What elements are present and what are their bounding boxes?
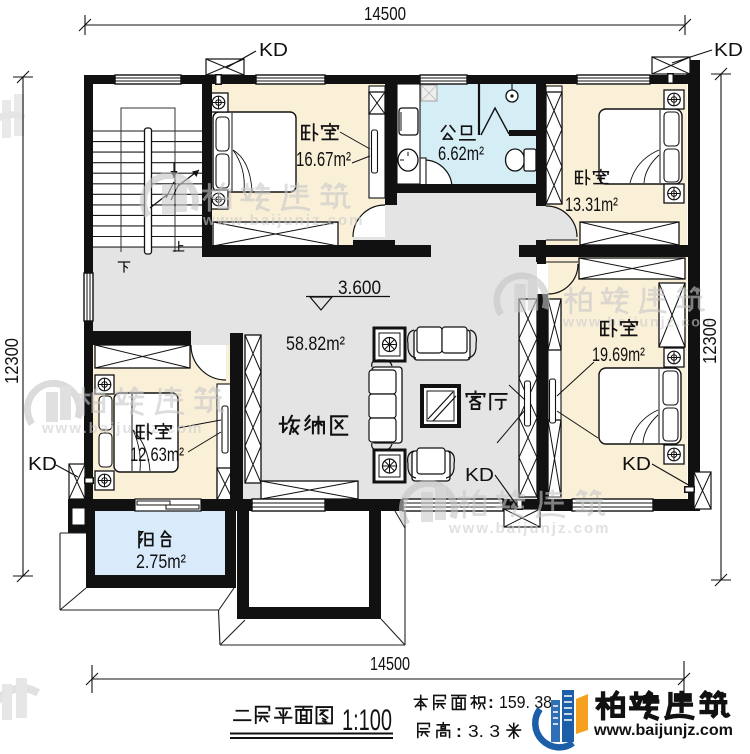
svg-text:KD: KD	[259, 40, 288, 60]
svg-text:KD: KD	[714, 40, 743, 60]
svg-text:12300: 12300	[700, 318, 720, 364]
svg-text:12.63m²: 12.63m²	[130, 445, 184, 466]
svg-text:16.67m²: 16.67m²	[296, 149, 351, 171]
svg-text:www.baijunjz.com: www.baijunjz.com	[448, 520, 610, 537]
svg-text:1:100: 1:100	[342, 704, 392, 737]
svg-text:6.62m²: 6.62m²	[438, 144, 484, 165]
svg-text:13.31m²: 13.31m²	[565, 195, 618, 216]
svg-text:KD: KD	[465, 465, 494, 485]
svg-text:KD: KD	[28, 454, 57, 474]
svg-text:KD: KD	[622, 454, 651, 474]
svg-text:58.82m²: 58.82m²	[286, 334, 345, 355]
svg-text:www.baijunjz.com: www.baijunjz.com	[202, 212, 364, 229]
svg-text:12300: 12300	[2, 338, 22, 384]
svg-text:2.75m²: 2.75m²	[136, 552, 186, 573]
svg-text:www.baijunjz.com: www.baijunjz.com	[593, 722, 733, 739]
svg-text:3. 3: 3. 3	[468, 721, 500, 741]
svg-text:3.600: 3.600	[338, 278, 381, 299]
svg-text:www.baijunjz.com: www.baijunjz.com	[41, 420, 203, 437]
svg-text:www.baijunjz.com: www.baijunjz.com	[562, 314, 716, 330]
svg-text::: :	[488, 692, 494, 712]
svg-text::: :	[456, 721, 462, 741]
svg-text:14500: 14500	[370, 654, 410, 674]
svg-text:14500: 14500	[364, 4, 406, 24]
svg-text:19.69m²: 19.69m²	[592, 345, 645, 366]
svg-text:159. 38: 159. 38	[499, 692, 552, 712]
